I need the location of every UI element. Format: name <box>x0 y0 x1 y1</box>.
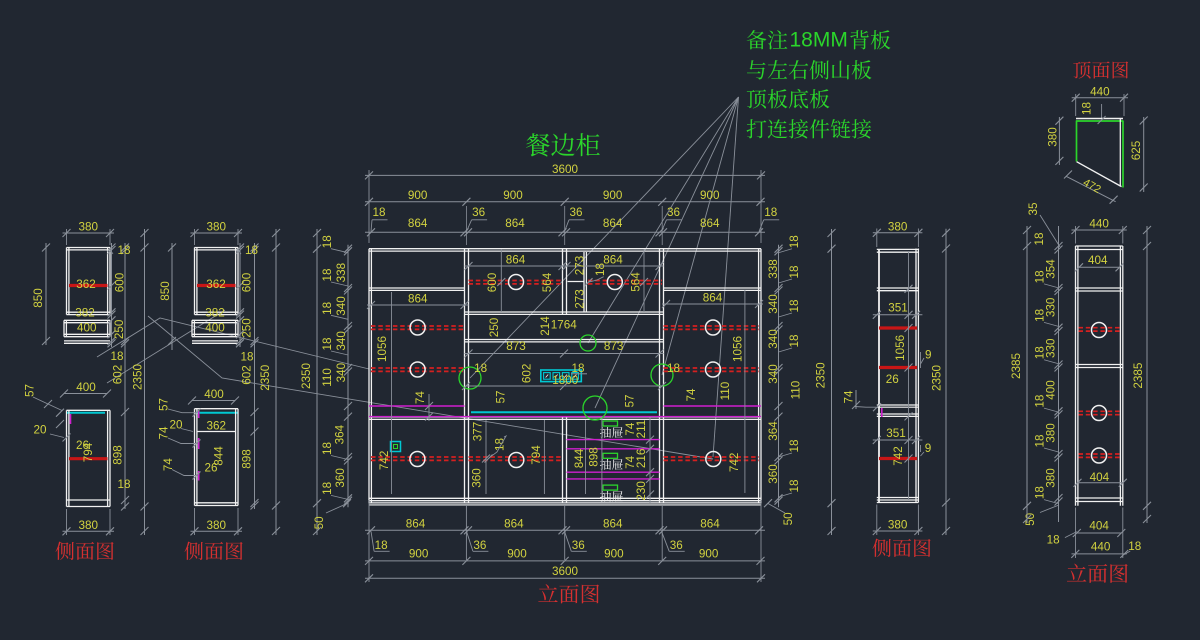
svg-text:18: 18 <box>1033 232 1046 245</box>
svg-text:36: 36 <box>572 539 585 552</box>
svg-text:440: 440 <box>1090 85 1110 98</box>
svg-text:9: 9 <box>925 442 932 455</box>
svg-text:74: 74 <box>162 458 175 472</box>
svg-text:600: 600 <box>486 272 499 292</box>
svg-text:377: 377 <box>472 422 485 442</box>
svg-text:898: 898 <box>588 447 601 467</box>
svg-text:2350: 2350 <box>259 364 272 391</box>
svg-text:380: 380 <box>78 221 98 234</box>
svg-text:404: 404 <box>1088 254 1108 267</box>
svg-text:364: 364 <box>334 424 347 444</box>
svg-text:20: 20 <box>169 419 183 432</box>
svg-text:900: 900 <box>603 189 623 202</box>
svg-text:18: 18 <box>764 206 777 219</box>
svg-text:873: 873 <box>506 340 526 353</box>
svg-text:74: 74 <box>158 426 171 440</box>
svg-text:1800: 1800 <box>552 374 579 387</box>
svg-text:18: 18 <box>788 265 801 278</box>
svg-text:900: 900 <box>503 189 523 202</box>
svg-text:400: 400 <box>76 381 96 394</box>
svg-text:864: 864 <box>603 517 623 530</box>
svg-text:50: 50 <box>782 512 795 526</box>
svg-text:898: 898 <box>112 445 125 465</box>
svg-text:216: 216 <box>635 449 648 469</box>
svg-text:18: 18 <box>321 442 334 455</box>
svg-text:18: 18 <box>788 299 801 312</box>
svg-text:898: 898 <box>241 449 254 469</box>
svg-text:382: 382 <box>205 307 225 320</box>
svg-text:74: 74 <box>414 391 427 405</box>
svg-text:18: 18 <box>788 479 801 492</box>
svg-text:340: 340 <box>335 296 348 316</box>
svg-text:36: 36 <box>569 206 582 219</box>
svg-text:230: 230 <box>635 481 648 501</box>
svg-text:900: 900 <box>409 548 429 561</box>
svg-text:440: 440 <box>1089 218 1109 231</box>
svg-text:18: 18 <box>372 206 385 219</box>
svg-text:250: 250 <box>113 319 126 339</box>
svg-text:864: 864 <box>703 292 723 305</box>
svg-text:400: 400 <box>1045 380 1058 400</box>
svg-text:57: 57 <box>24 384 37 397</box>
svg-text:362: 362 <box>206 278 226 291</box>
svg-text:794: 794 <box>530 445 543 465</box>
svg-text:57: 57 <box>623 394 636 407</box>
svg-text:340: 340 <box>767 329 780 349</box>
svg-text:36: 36 <box>473 539 486 552</box>
svg-text:380: 380 <box>206 221 226 234</box>
svg-text:900: 900 <box>604 548 624 561</box>
svg-text:18: 18 <box>494 438 507 451</box>
svg-text:364: 364 <box>767 421 780 441</box>
svg-text:340: 340 <box>335 362 348 382</box>
svg-text:57: 57 <box>494 390 507 403</box>
svg-text:340: 340 <box>767 364 780 384</box>
svg-text:2350: 2350 <box>132 364 145 391</box>
svg-text:900: 900 <box>408 189 428 202</box>
svg-text:864: 864 <box>504 517 524 530</box>
svg-text:742: 742 <box>892 446 905 466</box>
svg-text:18MM: 18MM <box>790 29 848 52</box>
svg-text:273: 273 <box>573 289 586 309</box>
svg-text:794: 794 <box>82 442 95 462</box>
svg-text:18: 18 <box>118 478 131 491</box>
svg-text:1056: 1056 <box>731 336 744 362</box>
svg-text:742: 742 <box>728 453 741 473</box>
svg-text:18: 18 <box>788 334 801 347</box>
svg-text:18: 18 <box>321 235 334 248</box>
svg-text:18: 18 <box>375 539 388 552</box>
svg-text:18: 18 <box>788 235 801 248</box>
svg-text:2350: 2350 <box>930 365 943 392</box>
svg-text:864: 864 <box>505 217 525 230</box>
svg-text:18: 18 <box>474 362 487 375</box>
svg-text:9: 9 <box>925 349 932 362</box>
svg-text:273: 273 <box>573 256 586 276</box>
svg-text:340: 340 <box>767 294 780 314</box>
svg-text:864: 864 <box>700 217 720 230</box>
svg-text:360: 360 <box>471 468 484 488</box>
svg-text:900: 900 <box>507 548 527 561</box>
svg-text:18: 18 <box>321 482 334 495</box>
svg-text:625: 625 <box>1130 140 1143 160</box>
svg-text:18: 18 <box>110 350 123 363</box>
svg-text:382: 382 <box>75 307 95 320</box>
svg-text:110: 110 <box>790 380 803 399</box>
svg-text:18: 18 <box>594 263 607 276</box>
svg-text:338: 338 <box>767 259 780 279</box>
svg-text:1056: 1056 <box>376 336 389 362</box>
svg-text:2385: 2385 <box>1010 353 1023 380</box>
svg-text:26: 26 <box>886 373 899 386</box>
svg-text:330: 330 <box>1044 338 1057 358</box>
svg-text:400: 400 <box>204 388 224 401</box>
svg-text:110: 110 <box>719 381 732 400</box>
svg-text:864: 864 <box>506 254 526 267</box>
svg-text:1764: 1764 <box>551 319 578 332</box>
svg-text:873: 873 <box>604 340 624 353</box>
svg-text:35: 35 <box>1027 202 1040 216</box>
svg-text:36: 36 <box>472 206 485 219</box>
svg-text:18: 18 <box>788 439 801 452</box>
svg-text:18: 18 <box>321 302 334 315</box>
svg-text:602: 602 <box>241 365 254 385</box>
svg-text:380: 380 <box>206 519 226 532</box>
svg-text:18: 18 <box>571 362 584 375</box>
svg-text:742: 742 <box>378 451 391 471</box>
svg-text:110: 110 <box>321 368 334 387</box>
svg-text:36: 36 <box>670 539 683 552</box>
svg-text:380: 380 <box>1045 468 1058 488</box>
svg-text:362: 362 <box>206 419 226 432</box>
svg-text:864: 864 <box>408 217 428 230</box>
svg-text:351: 351 <box>886 427 906 440</box>
svg-text:844: 844 <box>573 448 586 468</box>
svg-text:338: 338 <box>335 263 348 283</box>
svg-text:18: 18 <box>240 351 253 364</box>
svg-text:400: 400 <box>77 322 97 335</box>
svg-text:600: 600 <box>241 272 254 292</box>
svg-text:3600: 3600 <box>552 565 579 578</box>
svg-text:362: 362 <box>76 278 96 291</box>
svg-text:440: 440 <box>1091 540 1111 553</box>
svg-text:50: 50 <box>1024 512 1037 526</box>
svg-text:380: 380 <box>888 220 908 233</box>
svg-text:250: 250 <box>488 317 501 337</box>
svg-text:380: 380 <box>1046 127 1059 147</box>
svg-text:404: 404 <box>1089 520 1109 533</box>
svg-text:864: 864 <box>408 293 428 306</box>
svg-text:74: 74 <box>685 388 698 402</box>
svg-text:2350: 2350 <box>300 363 313 390</box>
svg-text:864: 864 <box>700 517 720 530</box>
svg-text:602: 602 <box>112 365 125 385</box>
svg-text:360: 360 <box>334 468 347 488</box>
svg-text:18: 18 <box>321 268 334 281</box>
svg-text:900: 900 <box>700 189 720 202</box>
svg-text:850: 850 <box>32 288 45 308</box>
svg-text:250: 250 <box>241 318 254 338</box>
svg-text:3600: 3600 <box>552 163 579 176</box>
svg-text:380: 380 <box>78 519 98 532</box>
svg-text:864: 864 <box>603 217 623 230</box>
svg-text:564: 564 <box>541 272 554 292</box>
svg-text:18: 18 <box>1081 102 1094 115</box>
svg-text:380: 380 <box>888 519 908 532</box>
svg-text:2350: 2350 <box>815 362 828 389</box>
svg-text:330: 330 <box>1044 297 1057 317</box>
svg-text:354: 354 <box>1045 259 1058 279</box>
svg-text:900: 900 <box>699 548 719 561</box>
svg-text:600: 600 <box>114 272 127 292</box>
svg-text:18: 18 <box>321 337 334 350</box>
svg-text:351: 351 <box>888 301 908 314</box>
svg-text:360: 360 <box>767 464 780 484</box>
svg-text:564: 564 <box>629 272 642 292</box>
svg-text:850: 850 <box>159 281 172 301</box>
svg-text:50: 50 <box>313 516 326 530</box>
svg-text:211: 211 <box>635 420 648 439</box>
svg-text:340: 340 <box>335 331 348 351</box>
svg-text:2385: 2385 <box>1132 362 1145 389</box>
svg-text:18: 18 <box>118 244 131 257</box>
svg-text:36: 36 <box>667 206 680 219</box>
svg-text:404: 404 <box>1090 471 1110 484</box>
svg-text:400: 400 <box>205 322 225 335</box>
svg-text:844: 844 <box>212 446 225 466</box>
svg-text:18: 18 <box>1047 534 1060 547</box>
svg-text:20: 20 <box>33 424 47 437</box>
svg-text:74: 74 <box>843 390 856 404</box>
svg-text:1056: 1056 <box>894 335 907 361</box>
svg-text:18: 18 <box>667 362 680 375</box>
svg-text:864: 864 <box>406 517 426 530</box>
svg-text:602: 602 <box>520 364 533 384</box>
svg-text:380: 380 <box>1045 423 1058 443</box>
svg-text:18: 18 <box>245 244 258 257</box>
